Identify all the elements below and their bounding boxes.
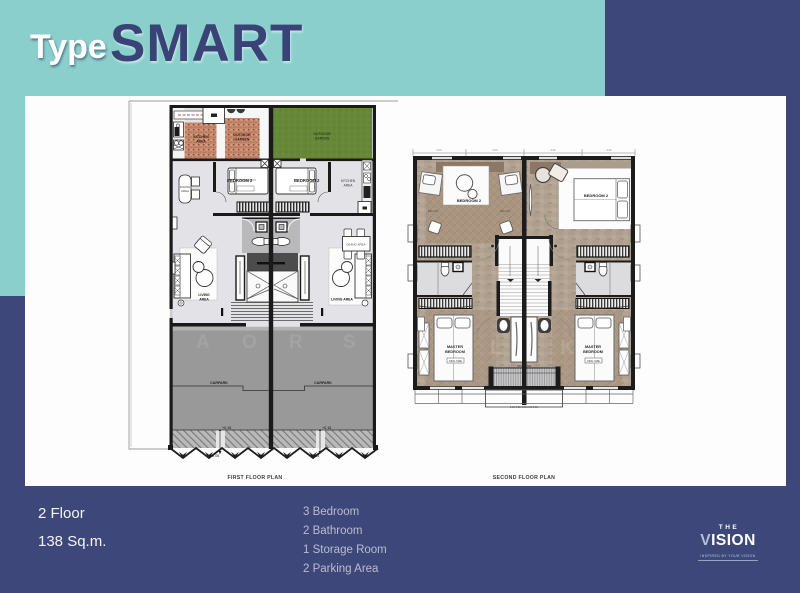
svg-text:3.00: 3.00: [550, 148, 556, 152]
svg-text:+0.05: +0.05: [310, 454, 319, 458]
svg-text:BEDROOM 2: BEDROOM 2: [294, 178, 320, 183]
svg-text:DINING AREA: DINING AREA: [346, 243, 365, 247]
svg-text:GARDEN: GARDEN: [235, 138, 250, 142]
svg-text:LIVING: LIVING: [198, 293, 210, 297]
svg-text:KING SIZE: KING SIZE: [587, 359, 600, 363]
svg-text:O: O: [242, 332, 257, 353]
svg-text:3.00: 3.00: [492, 148, 498, 152]
svg-text:KITCHEN: KITCHEN: [341, 179, 356, 183]
svg-text:3.0 x 6.0: 3.0 x 6.0: [428, 209, 439, 213]
svg-text:1.50 1.20 1.50 1.20 1.50: 1.50 1.20 1.50 1.20 1.50: [510, 405, 539, 409]
svg-text:S: S: [343, 332, 356, 353]
svg-text:AREA: AREA: [344, 184, 354, 188]
svg-text:LIVING AREA: LIVING AREA: [331, 298, 353, 302]
svg-text:MASTER: MASTER: [585, 345, 601, 349]
svg-text:A: A: [196, 332, 210, 353]
svg-text:KING SIZE: KING SIZE: [449, 359, 462, 363]
svg-text:A: A: [450, 337, 464, 359]
svg-text:R: R: [289, 332, 303, 353]
svg-text:3.0 x 6.0: 3.0 x 6.0: [500, 209, 511, 213]
svg-text:K: K: [560, 337, 575, 359]
svg-text:BEDROOM 2: BEDROOM 2: [457, 198, 482, 203]
svg-text:OUTDOOR: OUTDOOR: [233, 133, 251, 137]
svg-text:3.00: 3.00: [606, 148, 612, 152]
svg-text:CARPARK: CARPARK: [210, 381, 228, 385]
svg-text:GARDEN: GARDEN: [315, 137, 330, 141]
svg-text:OUTDOOR: OUTDOOR: [313, 132, 331, 136]
svg-text:AREA: AREA: [196, 140, 206, 144]
svg-text:CARPARK: CARPARK: [314, 381, 332, 385]
svg-text:BEDROOM 2: BEDROOM 2: [584, 193, 609, 198]
svg-text:3.00: 3.00: [436, 148, 442, 152]
svg-text:BEDROOM 2: BEDROOM 2: [227, 178, 253, 183]
svg-text:+0.15: +0.15: [322, 426, 331, 430]
svg-text:L: L: [490, 337, 502, 359]
svg-text:AREA: AREA: [181, 189, 189, 193]
svg-text:BEDROOM: BEDROOM: [583, 350, 603, 354]
svg-text:KITCHEN: KITCHEN: [193, 135, 209, 139]
svg-text:+0.15: +0.15: [222, 426, 231, 430]
svg-text:SECOND FLOOR PLAN: SECOND FLOOR PLAN: [493, 475, 555, 481]
svg-text:AREA: AREA: [199, 298, 209, 302]
svg-text:+0.05: +0.05: [210, 454, 219, 458]
svg-text:FIRST FLOOR PLAN: FIRST FLOOR PLAN: [228, 475, 283, 481]
